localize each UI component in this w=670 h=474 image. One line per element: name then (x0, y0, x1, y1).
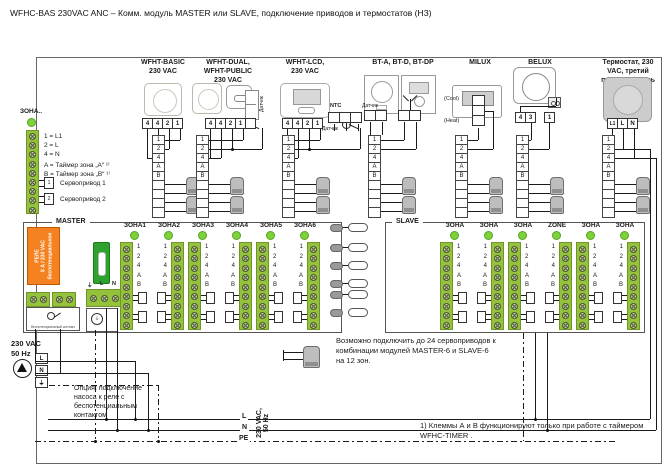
zone-label: ЗОНА (472, 222, 506, 229)
wire-line (656, 158, 657, 430)
zone-terminal-label: 2 (291, 254, 303, 260)
zone-terminal-label: A (543, 273, 555, 279)
plug-prong (554, 319, 559, 320)
zone-terminal-label: 4 (205, 263, 217, 269)
servo-plug-icon (545, 292, 554, 304)
actuator-icon (316, 196, 330, 214)
actuator-prong (529, 211, 550, 212)
screw-icon (174, 312, 181, 319)
wire-line (232, 129, 233, 149)
plug-prong (302, 319, 307, 320)
terminal-cell (369, 190, 380, 199)
wire-line (262, 128, 263, 149)
actuator-prong (209, 202, 230, 203)
wire-line (535, 333, 536, 419)
plug-prong (589, 314, 594, 315)
screw-icon (310, 265, 317, 272)
plug-prong (234, 300, 239, 301)
zone-block: ЗОНА4124AB (222, 222, 252, 334)
plug-prong (302, 314, 307, 315)
thermostat-terminal-strip: 124AB (516, 135, 529, 218)
thermostat-terminal-strip: 124AB (152, 135, 165, 218)
servo-plug-icon: 1 (44, 177, 54, 189)
zone-terminal-label: 2 (543, 254, 555, 260)
terminal-box (350, 112, 362, 123)
screw-icon (242, 312, 249, 319)
wire-line (346, 124, 347, 131)
terminal-cell: 4 (283, 154, 294, 163)
zone-label: ЗОНА (506, 222, 540, 229)
zone-indicator-dot (266, 231, 275, 240)
terminal-cell: 2 (603, 145, 614, 154)
screw-icon (123, 312, 130, 319)
jumper-link-socket (348, 308, 368, 317)
screw-icon (191, 303, 198, 310)
screw-icon (174, 255, 181, 262)
terminal-cell (197, 181, 208, 190)
zone-block: ЗОНА6124AB (290, 222, 320, 334)
dial-icon (613, 85, 643, 115)
servo-plug-icon (526, 292, 535, 304)
terminal-cell: 4 (603, 154, 614, 163)
actuator-base (305, 362, 318, 366)
screw-icon (191, 293, 198, 300)
wire-line (48, 430, 656, 431)
screw-icon (443, 265, 450, 272)
screw-icon (562, 284, 569, 291)
terminal-cell (283, 199, 294, 208)
wire-line (615, 158, 656, 159)
col-header-wfht-dual: WFHT-DUAL, WFHT-PUBLIC 230 VAC (192, 59, 264, 85)
screw-icon (630, 274, 637, 281)
actuator-prong (529, 184, 550, 185)
terminal-cell: A (369, 163, 380, 172)
zone-terminal-label: 2 (611, 254, 623, 260)
milux-terminal-box (472, 115, 485, 126)
zone-terminal-label: 4 (593, 263, 605, 269)
actuator-prong (468, 211, 489, 212)
screw-icon (494, 246, 501, 253)
actuator-icon (489, 196, 503, 214)
dial-icon (153, 89, 177, 113)
wire-line (209, 149, 262, 150)
actuator-icon (402, 196, 416, 214)
screw-icon (29, 161, 36, 168)
plug-prong (269, 314, 274, 315)
wire-line (147, 129, 148, 158)
screw-icon (101, 295, 108, 302)
plug-prong (234, 295, 239, 296)
power-l-label: L (100, 281, 103, 287)
terminal-cell (197, 190, 208, 199)
terminal-cell: A (603, 163, 614, 172)
wire-line (410, 99, 411, 110)
screw-icon (174, 265, 181, 272)
screw-icon (242, 255, 249, 262)
terminal-cell: 1 (197, 136, 208, 145)
terminal-box: 3 (525, 112, 536, 123)
zone-terminal-strip (559, 242, 572, 330)
screw-icon (562, 246, 569, 253)
plug-prong (269, 295, 274, 296)
jumper-link-gray (330, 309, 343, 317)
plug-prong (453, 300, 458, 301)
servo-plug-icon (594, 292, 603, 304)
wire-line (650, 149, 651, 419)
screw-icon (66, 296, 73, 303)
junction-dot (534, 418, 537, 421)
plug-prong (589, 319, 594, 320)
plug-prong (39, 180, 44, 181)
pump-icon (13, 359, 32, 378)
actuator-icon (636, 177, 650, 195)
terminal-cell: B (456, 172, 467, 181)
zone-indicator-dot (586, 231, 595, 240)
power-earth-label: ⏚ (87, 281, 93, 289)
wire-line (117, 308, 118, 430)
zone-block: ЗОНА5124AB (256, 222, 286, 334)
zone-block: ЗОНА124AB (508, 222, 538, 334)
terminal-cell: 2 (153, 145, 164, 154)
wire-line (623, 129, 624, 149)
actuator-prong (165, 211, 186, 212)
plug-prong (486, 295, 491, 296)
milux-heat-label: (Heat) (444, 118, 459, 124)
actuator-prong (209, 184, 230, 185)
relay-box: РЕЛЕ 8 А / 230 VAC беспотенциальное (27, 227, 60, 285)
zone-terminal-strip (120, 242, 133, 330)
terminal-cell: 2 (456, 145, 467, 154)
terminal-cell (153, 190, 164, 199)
zone-terminal-label: 4 (137, 263, 149, 269)
screw-icon (562, 303, 569, 310)
terminal-cell (197, 208, 208, 217)
plug-prong (39, 196, 44, 197)
servo-plug-icon (477, 311, 486, 323)
screw-icon (242, 246, 249, 253)
actuator-prong (529, 193, 550, 194)
lcd-screen (293, 89, 321, 105)
bus-voltage-label: 230 VAC, 50 Hz (252, 400, 274, 446)
zone-terminal-label: B (457, 282, 469, 288)
lcd-buttons (298, 107, 315, 114)
zone-indicator-dot (198, 231, 207, 240)
wire-line (209, 158, 221, 159)
wire-line (615, 149, 650, 150)
wire-line (165, 140, 180, 141)
terminal-cell (517, 181, 528, 190)
screw-icon (494, 322, 501, 329)
screw-icon (579, 322, 586, 329)
zone-terminal-label: 1 (155, 244, 167, 250)
servo-plug-icon (225, 311, 234, 323)
screw-icon (123, 255, 130, 262)
actuator-icon (489, 177, 503, 195)
servo-plug-icon (594, 311, 603, 323)
zone-terminal-label: B (273, 282, 285, 288)
screw-icon (90, 295, 97, 302)
milux-cool-label: (Cool) (444, 96, 459, 102)
screw-icon (494, 312, 501, 319)
wire-line (531, 123, 532, 140)
plug-prong (302, 300, 307, 301)
zone-terminal-label: 2 (223, 254, 235, 260)
terminal-box: N (627, 118, 638, 129)
plug-prong (521, 319, 526, 320)
zone-label: ЗОНА6 (288, 222, 322, 229)
terminal-cell (456, 190, 467, 199)
actuator-icon (230, 196, 244, 214)
wire-line (295, 140, 320, 141)
actuator-prong (468, 184, 489, 185)
screw-icon (443, 284, 450, 291)
thirdparty-thermostat-icon (603, 77, 652, 122)
terminal-cell: 2 (369, 145, 380, 154)
wiring-diagram-page: WFHC-BAS 230VAC ANC – Комм. модуль MASTE… (0, 0, 670, 474)
wire-line (529, 149, 549, 150)
zone-terminal-label: 2 (273, 254, 285, 260)
screw-icon (123, 322, 130, 329)
zone-terminal-label: 1 (291, 244, 303, 250)
zone-block: ЗОНА124AB (440, 222, 470, 334)
wire-line (382, 122, 383, 135)
plug-prong (133, 319, 138, 320)
screw-icon (56, 296, 63, 303)
wire-dashdot-earth (35, 441, 615, 442)
servo-plug-icon (274, 292, 283, 304)
plug-prong (269, 300, 274, 301)
plug-prong (589, 300, 594, 301)
wire-line (283, 352, 303, 353)
terminal-box: 1 (544, 112, 555, 123)
screw-icon (630, 255, 637, 262)
plug-prong (166, 314, 171, 315)
zone-terminal-label: 4 (291, 263, 303, 269)
terminal-cell: A (283, 163, 294, 172)
wire-line (209, 140, 243, 141)
actuator-prong (165, 202, 186, 203)
actuator-prong (209, 211, 230, 212)
zone-block: ЗОНА1124AB (120, 222, 150, 334)
wire-line (493, 111, 494, 149)
wfht-dual-thermostat-icon (192, 83, 222, 114)
zone-terminal-label: B (475, 282, 487, 288)
jumper-link-gray (330, 244, 343, 252)
junction-dot (147, 429, 150, 432)
zone-label: ЗОНА2 (152, 222, 186, 229)
terminal-cell (517, 208, 528, 217)
terminal-cell: B (369, 172, 380, 181)
zone-terminal-label: 4 (543, 263, 555, 269)
zone-terminal-label: 1 (137, 244, 149, 250)
servo-plug-icon: 2 (44, 193, 54, 205)
screw-icon (29, 188, 36, 195)
col-header-milux: MILUX (448, 59, 512, 68)
zone-indicator-dot (164, 231, 173, 240)
zone-terminal-label: 1 (593, 244, 605, 250)
wire-line (35, 361, 135, 362)
junction-dot (116, 429, 119, 432)
servo-plug-icon (526, 311, 535, 323)
servo-capacity-note: Возможно подключить до 24 сервоприводов … (336, 336, 496, 365)
plug-prong (166, 300, 171, 301)
zone-terminal-label: A (611, 273, 623, 279)
plug-prong (269, 319, 274, 320)
dial-icon (522, 73, 550, 101)
screw-icon (579, 274, 586, 281)
col-header-wfht-basic: WFHT-BASIC 230 VAC (128, 59, 198, 77)
pump-triangle (17, 363, 27, 372)
servo-plug-icon (458, 311, 467, 323)
servo-plug-icon (274, 311, 283, 323)
pump-terminal-earth: ⏚ (35, 377, 48, 388)
terminal-cell: 1 (456, 136, 467, 145)
servo-plug-icon (206, 292, 215, 304)
wire-line (468, 140, 478, 141)
screw-icon (511, 322, 518, 329)
zone-terminal-label: 1 (457, 244, 469, 250)
junction-dot (308, 148, 311, 151)
wire-line (468, 149, 493, 150)
wire-line (478, 128, 479, 140)
screw-icon (242, 284, 249, 291)
wire-line (404, 122, 405, 140)
servo-plug-icon (138, 311, 147, 323)
terminal-cell: 1 (603, 136, 614, 145)
zone-indicator-dot (552, 231, 561, 240)
terminal-cell (603, 190, 614, 199)
screw-icon (511, 274, 518, 281)
screw-icon (310, 303, 317, 310)
legend-servo1-label: Сервопривод 1 (60, 180, 106, 187)
terminal-cell: 2 (517, 145, 528, 154)
legend-line-2: 2 = L (44, 142, 59, 149)
terminal-cell (603, 181, 614, 190)
thermostat-terminal-strip: 124AB (602, 135, 615, 218)
actuator-icon (636, 196, 650, 214)
screw-icon (123, 274, 130, 281)
terminal-cell: 1 (369, 136, 380, 145)
screw-icon (123, 246, 130, 253)
jumper-link-socket (348, 290, 368, 299)
terminal-cell: 4 (153, 154, 164, 163)
wire-line (334, 124, 335, 131)
zone-terminal-label: B (223, 282, 235, 288)
screw-icon (123, 284, 130, 291)
wire-line (358, 124, 359, 131)
zone-terminal-label: A (137, 273, 149, 279)
plug-prong (39, 186, 44, 187)
terminal-cell: A (153, 163, 164, 172)
plug-prong (622, 295, 627, 296)
zone-terminal-label: 2 (457, 254, 469, 260)
zone-terminal-label: A (291, 273, 303, 279)
screw-icon (242, 274, 249, 281)
zone-label: ЗОНА5 (254, 222, 288, 229)
terminal-box (375, 110, 387, 121)
power-n-label: N (112, 281, 116, 287)
screw-icon (259, 274, 266, 281)
screw-icon (511, 265, 518, 272)
terminal-cell: 1 (517, 136, 528, 145)
bt-d-thermostat-icon (401, 75, 436, 114)
zone-terminal-strip (627, 242, 640, 330)
screw-icon (630, 312, 637, 319)
zone-terminal-label: 1 (273, 244, 285, 250)
zone-label: ЗОНА3 (186, 222, 220, 229)
zone-terminal-label: B (525, 282, 537, 288)
servo-plug-icon (477, 292, 486, 304)
screw-icon (562, 265, 569, 272)
screw-icon (562, 312, 569, 319)
zone-terminal-label: 2 (475, 254, 487, 260)
wire-line (547, 333, 548, 430)
plug-prong (166, 319, 171, 320)
zone-terminal-label: 1 (223, 244, 235, 250)
sensor-label-lcd: Датчик (322, 126, 338, 132)
screw-icon (579, 246, 586, 253)
screw-icon (579, 284, 586, 291)
plug-prong (453, 295, 458, 296)
plug-prong (133, 300, 138, 301)
wire-line (210, 129, 211, 158)
lcd-screen (409, 82, 429, 94)
terminal-cell (153, 208, 164, 217)
wire-line (295, 149, 360, 150)
screw-icon (242, 265, 249, 272)
zone-terminal-label: A (223, 273, 235, 279)
zone-terminal-label: 4 (611, 263, 623, 269)
dial-icon (198, 89, 219, 110)
zone-block: ЗОНА124AB (576, 222, 606, 334)
zone-terminal-label: 4 (223, 263, 235, 269)
zone-indicator-dot (484, 231, 493, 240)
screw-icon (242, 293, 249, 300)
zone-terminal-label: 2 (155, 254, 167, 260)
screw-icon (259, 293, 266, 300)
actuator-prong (295, 193, 316, 194)
actuator-icon (402, 177, 416, 195)
zone-terminal-strip (171, 242, 184, 330)
legend-zone-dot (27, 118, 36, 127)
screw-icon (630, 322, 637, 329)
jumper-link-gray (330, 224, 343, 232)
zone-block: ZONE124AB (542, 222, 572, 334)
screw-icon (443, 312, 450, 319)
terminal-box (409, 110, 421, 121)
plug-prong (486, 314, 491, 315)
servo-plug-icon (293, 292, 302, 304)
servo-actuator-icon (303, 346, 320, 368)
zone-terminal-label: A (593, 273, 605, 279)
screw-icon (579, 303, 586, 310)
zone-terminal-label: A (475, 273, 487, 279)
terminal-cell (517, 190, 528, 199)
terminal-cell: 4 (197, 154, 208, 163)
zone-terminal-label: 2 (593, 254, 605, 260)
dial-icon (414, 96, 425, 107)
screw-icon (494, 265, 501, 272)
screw-icon (191, 255, 198, 262)
screw-icon (29, 197, 36, 204)
terminal-cell (369, 208, 380, 217)
screw-icon (443, 322, 450, 329)
junction-dot (546, 429, 549, 432)
plug-prong (302, 295, 307, 296)
screw-icon (191, 284, 198, 291)
terminal-box: 1 (172, 118, 183, 129)
screw-icon (123, 265, 130, 272)
